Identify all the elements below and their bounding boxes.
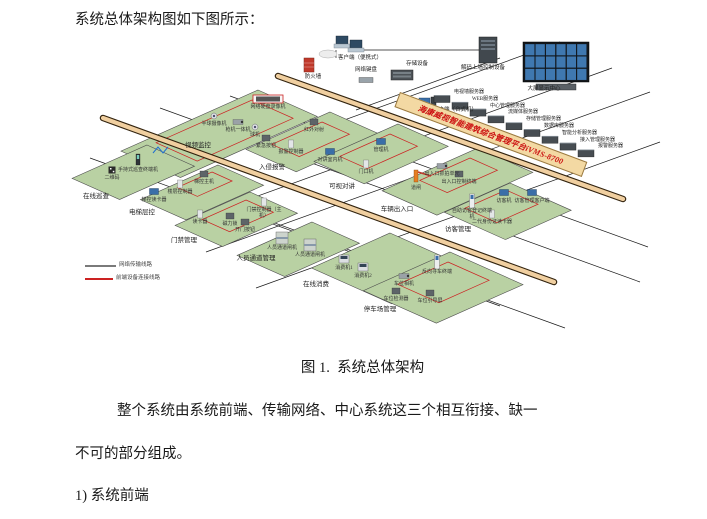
server-label: 流媒体服务器 (508, 110, 538, 115)
server-label: 电视墙服务器 (454, 90, 484, 95)
platform-label: 停车场管理 (364, 307, 397, 314)
platform-label: 入侵报警 (259, 165, 285, 172)
server-label: 智能分析服务器 (562, 131, 597, 136)
platform-label: 可视对讲 (329, 184, 355, 191)
top-device-label: 客户端（便携式） (338, 56, 382, 62)
server-flat-icon (542, 136, 558, 143)
device-label: 车位引导屏 (410, 299, 450, 305)
server-tall-icon (481, 44, 495, 46)
videowall-icon (556, 44, 566, 56)
device-label: 开门按钮 (225, 228, 265, 234)
videowall-icon (567, 56, 577, 68)
screen-icon (500, 190, 509, 196)
top-device-label: 存储设备 (406, 62, 428, 68)
paragraph-line-1: 整个系统由系统前端、传输网络、中心系统这三个相互衔接、缺一 (117, 399, 538, 420)
top-device-label: 解码上墙控制设备 (461, 66, 505, 72)
videowall-icon (535, 44, 545, 56)
server-label: 报警服务器 (598, 144, 623, 149)
device-label: 网络硬盘录像机 (248, 105, 288, 111)
screen-icon (150, 189, 159, 195)
platform-label: 门禁管理 (171, 238, 197, 245)
device-label: 梯控读卡器 (134, 198, 174, 204)
device-label: 出入口抓拍单元 (422, 172, 462, 178)
top-device-label: 大屏显示中心 (527, 87, 560, 93)
device-label: 梯控主机 (184, 180, 224, 186)
server-label: 存储管理服务器 (526, 117, 561, 122)
server-flat-icon (524, 130, 540, 137)
platform-label: 在线消费 (303, 282, 329, 289)
qr-icon (113, 171, 115, 173)
server-label: 数据库服务器 (544, 124, 574, 129)
videowall-icon (567, 69, 577, 81)
qr-icon (109, 167, 116, 174)
panel-icon (198, 210, 203, 218)
device-label: 消费机1 (324, 266, 364, 272)
device-label: 手持式巡查终端机 (118, 168, 158, 174)
videowall-icon (556, 69, 566, 81)
panel-icon (178, 180, 183, 188)
device-label: 访客管理客户端 (512, 199, 552, 205)
videowall-icon (546, 69, 556, 81)
videowall-icon (577, 44, 587, 56)
server-tall-icon (481, 40, 495, 42)
legend-label: 网络传输线路 (119, 263, 152, 269)
kiosk-icon (471, 195, 474, 199)
cam-lens (445, 165, 447, 167)
screen-icon (326, 149, 335, 155)
top-device-label: 防火墙 (305, 75, 322, 81)
device-label: 门口机 (346, 170, 386, 176)
panel-icon (262, 198, 267, 206)
document-page: { "document": { "intro": "系统总体架构图如下图所示："… (0, 0, 707, 519)
platform-label: 人员通道管理 (237, 256, 276, 263)
dome-lens (213, 115, 215, 117)
server-tall-icon (481, 48, 495, 50)
platform-label: 在线巡查 (83, 194, 109, 201)
device-label: 车位相机 (384, 282, 424, 288)
server-label: 接入管理服务器 (580, 138, 615, 143)
gate-icon (276, 237, 288, 239)
top-device-label: 网络键盘 (355, 68, 377, 74)
videowall-icon (567, 44, 577, 56)
server-flat-icon (488, 116, 504, 123)
screen-icon (377, 139, 386, 145)
barrier-icon (414, 170, 418, 182)
box-icon (426, 290, 434, 296)
device-label: 球机 (235, 133, 275, 139)
cam-lens (241, 121, 243, 123)
cam-lens (407, 275, 409, 277)
device-label: 反向寻车终端 (417, 270, 457, 276)
device-label: 自助访客登记终端机 (452, 209, 492, 221)
pos-icon (341, 256, 348, 259)
device-label: 消费机2 (343, 274, 383, 280)
server-label: 中心管理服务器 (490, 104, 525, 109)
laptops-icon (348, 48, 364, 52)
nvr-icon (256, 97, 280, 102)
videowall-icon (556, 56, 566, 68)
storage-icon (393, 72, 411, 74)
videowall-icon (525, 56, 535, 68)
platform-label: 车辆出入口 (381, 207, 414, 214)
device-label: 管理机 (361, 148, 401, 154)
box-icon (310, 119, 318, 125)
device-label: 二代身份证读卡器 (472, 220, 512, 226)
storage-icon (391, 70, 413, 80)
device-label: 出入口控制终端 (439, 180, 479, 186)
laptops-icon (350, 40, 362, 48)
videowall-icon (546, 44, 556, 56)
platform-label: 视频监控 (185, 143, 211, 150)
panel-icon (364, 160, 369, 168)
box-icon (392, 288, 400, 294)
server-label: WEB服务器 (472, 97, 498, 102)
server-flat-icon (506, 123, 522, 130)
device-label: 半球摄像机 (194, 122, 234, 128)
device-base (319, 50, 337, 58)
device-label: 对讲室内机 (310, 158, 350, 164)
videowall-icon (535, 69, 545, 81)
server-flat-icon (434, 96, 450, 103)
qr-icon (110, 168, 112, 170)
kiosk-icon (436, 256, 439, 260)
videowall-icon (525, 44, 535, 56)
server-flat-icon (560, 143, 576, 150)
keyboard-icon (359, 78, 373, 83)
handheld-icon (137, 155, 139, 159)
device-label: 红外对射 (294, 128, 334, 134)
videowall-icon (577, 56, 587, 68)
device-label: 人员通道闸机 (290, 253, 330, 259)
paragraph-line-2: 不可的部分组成。 (75, 442, 191, 463)
legend-label: 前端设备连接线路 (116, 276, 160, 282)
storage-icon (393, 76, 411, 78)
list-item-1: 1) 系统前端 (75, 484, 149, 505)
server-flat-icon (578, 150, 594, 157)
videowall-icon (546, 56, 556, 68)
videowall-icon (577, 69, 587, 81)
device-label: 报警控制器 (271, 150, 311, 156)
videowall-icon (525, 69, 535, 81)
box-icon (200, 171, 208, 177)
panel-icon (289, 140, 294, 148)
laptops-icon (334, 44, 350, 48)
videowall-icon (535, 56, 545, 68)
device-label: 磁力锁 (210, 222, 250, 228)
device-label: 楼层控制器 (160, 190, 200, 196)
device-label: 二维码 (92, 176, 132, 182)
device-label: 门禁控制器（主机） (244, 208, 284, 220)
gate-icon (304, 244, 316, 246)
device-label: 道闸 (396, 186, 436, 192)
architecture-figure: 网络传输线路前端设备连接线路网络硬盘录像机半球摄像机枪机一体机球机视频监控手持式… (0, 0, 707, 345)
laptops-icon (336, 36, 348, 44)
screen-icon (528, 190, 537, 196)
device-label: 人员通道闸机 (262, 246, 302, 252)
box-icon (226, 213, 234, 219)
platform-label: 访客管理 (445, 227, 471, 234)
platform-label: 电梯层控 (129, 210, 155, 217)
firewall-icon (304, 58, 314, 72)
figure-caption: 图 1. 系统总体架构 (75, 356, 650, 377)
device-label: 紧急按钮 (246, 144, 286, 150)
